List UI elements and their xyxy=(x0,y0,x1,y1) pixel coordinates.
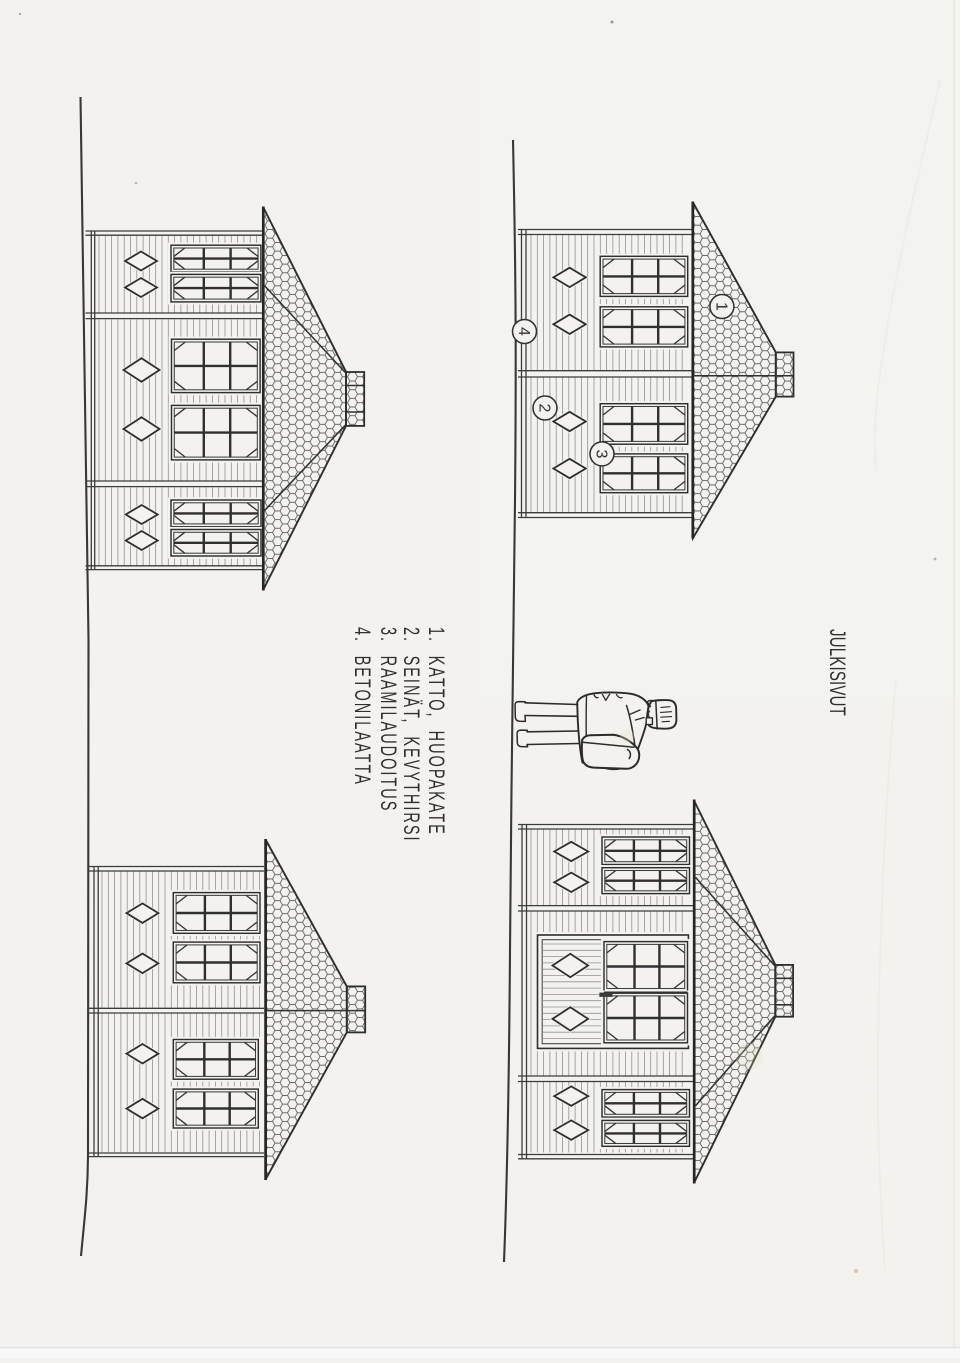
svg-text:KATTO, HUOPAKATE: KATTO, HUOPAKATE xyxy=(424,656,449,836)
svg-text:3.: 3. xyxy=(376,627,401,643)
svg-text:BETONILAATTA: BETONILAATTA xyxy=(350,656,375,786)
svg-text:1: 1 xyxy=(712,302,729,311)
svg-text:JULKISIVUT: JULKISIVUT xyxy=(824,629,849,716)
svg-text:SEINÄT, KEVYTHIRSI: SEINÄT, KEVYTHIRSI xyxy=(399,656,424,843)
svg-text:4.: 4. xyxy=(350,627,375,643)
svg-text:2: 2 xyxy=(535,404,552,413)
svg-text:4: 4 xyxy=(515,327,532,336)
svg-text:RAAMILAUDOITUS: RAAMILAUDOITUS xyxy=(376,656,401,813)
svg-text:3: 3 xyxy=(592,449,609,458)
svg-text:1.: 1. xyxy=(424,627,449,643)
svg-text:2.: 2. xyxy=(399,627,424,643)
